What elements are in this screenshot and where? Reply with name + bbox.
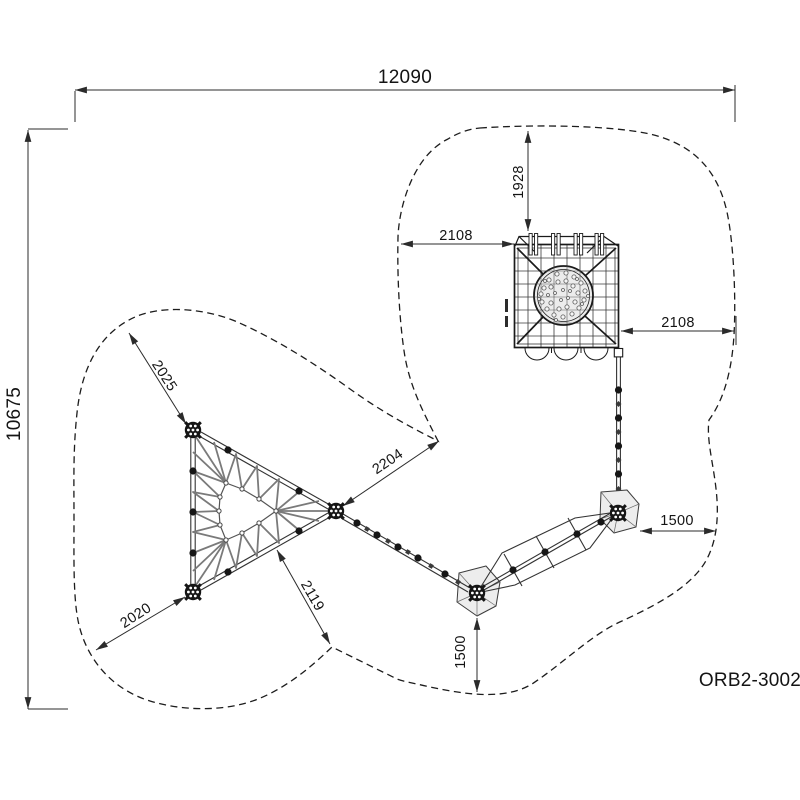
technical-drawing-page: 12090 10675 1928 2108 2108 2025 2204 202… <box>0 0 800 800</box>
dim-overall-width-label: 12090 <box>378 67 432 89</box>
climbing-tower <box>505 234 619 361</box>
dim-1500-right-label: 1500 <box>660 513 693 529</box>
product-code: ORB2-3002 <box>699 670 800 692</box>
dim-2108-left-label: 2108 <box>439 228 472 244</box>
safety-zone-outline <box>74 126 735 709</box>
tower-ball-pit <box>534 266 593 325</box>
rope-to-triangle <box>341 514 470 592</box>
rope-to-tower <box>614 349 622 507</box>
tower-bottom-scallops <box>525 347 608 360</box>
dim-1928-label: 1928 <box>511 165 527 198</box>
dim-1500-bottom-label: 1500 <box>453 635 469 668</box>
drawing-canvas <box>0 0 800 800</box>
dim-2108-right-label: 2108 <box>661 315 694 331</box>
dim-overall-height-label: 10675 <box>4 387 26 441</box>
rope-connector-hubs <box>185 422 626 601</box>
triangle-net <box>189 432 330 590</box>
tower-side-label-marks <box>505 299 508 327</box>
